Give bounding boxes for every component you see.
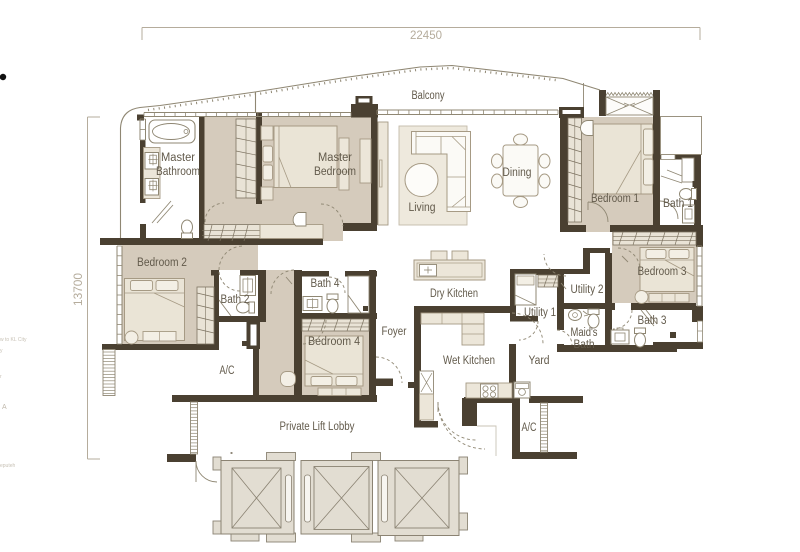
svg-text:Wet Kitchen: Wet Kitchen <box>443 355 495 367</box>
svg-text:22450: 22450 <box>410 28 442 42</box>
svg-text:Bath 4: Bath 4 <box>311 278 341 290</box>
svg-text:Bedroom 1: Bedroom 1 <box>591 193 639 205</box>
svg-text:Utility 1: Utility 1 <box>524 307 556 319</box>
svg-text:A: A <box>2 404 7 411</box>
svg-text:Bath 1: Bath 1 <box>663 198 693 210</box>
svg-text:Living: Living <box>409 202 436 214</box>
svg-text:Bedroom 3: Bedroom 3 <box>638 266 687 278</box>
svg-text:A/C: A/C <box>522 422 537 434</box>
svg-text:Bedroom: Bedroom <box>314 166 356 178</box>
svg-text:w to KL City: w to KL City <box>0 337 27 343</box>
svg-text:Maid's: Maid's <box>571 327 598 339</box>
svg-text:eputeh: eputeh <box>0 463 16 469</box>
svg-text:Bedroom 2: Bedroom 2 <box>137 257 187 269</box>
svg-text:Bath: Bath <box>574 339 595 351</box>
svg-text:Bath 2: Bath 2 <box>221 294 250 306</box>
svg-text:Master: Master <box>161 152 195 164</box>
svg-text:Master: Master <box>318 152 352 164</box>
svg-text:Utility 2: Utility 2 <box>571 284 604 296</box>
svg-text:Private Lift Lobby: Private Lift Lobby <box>280 421 355 433</box>
svg-text:Bath 3: Bath 3 <box>638 315 667 327</box>
svg-text:Yard: Yard <box>529 355 550 367</box>
svg-text:Foyer: Foyer <box>382 326 407 338</box>
svg-text:A/C: A/C <box>220 365 235 377</box>
svg-text:13700: 13700 <box>71 273 85 306</box>
svg-text:Dining: Dining <box>503 167 532 179</box>
svg-text:Balcony: Balcony <box>412 90 445 102</box>
svg-text:Bedroom 4: Bedroom 4 <box>308 336 361 348</box>
svg-text:Dry Kitchen: Dry Kitchen <box>430 288 478 300</box>
svg-text:Bathroom: Bathroom <box>156 166 200 178</box>
